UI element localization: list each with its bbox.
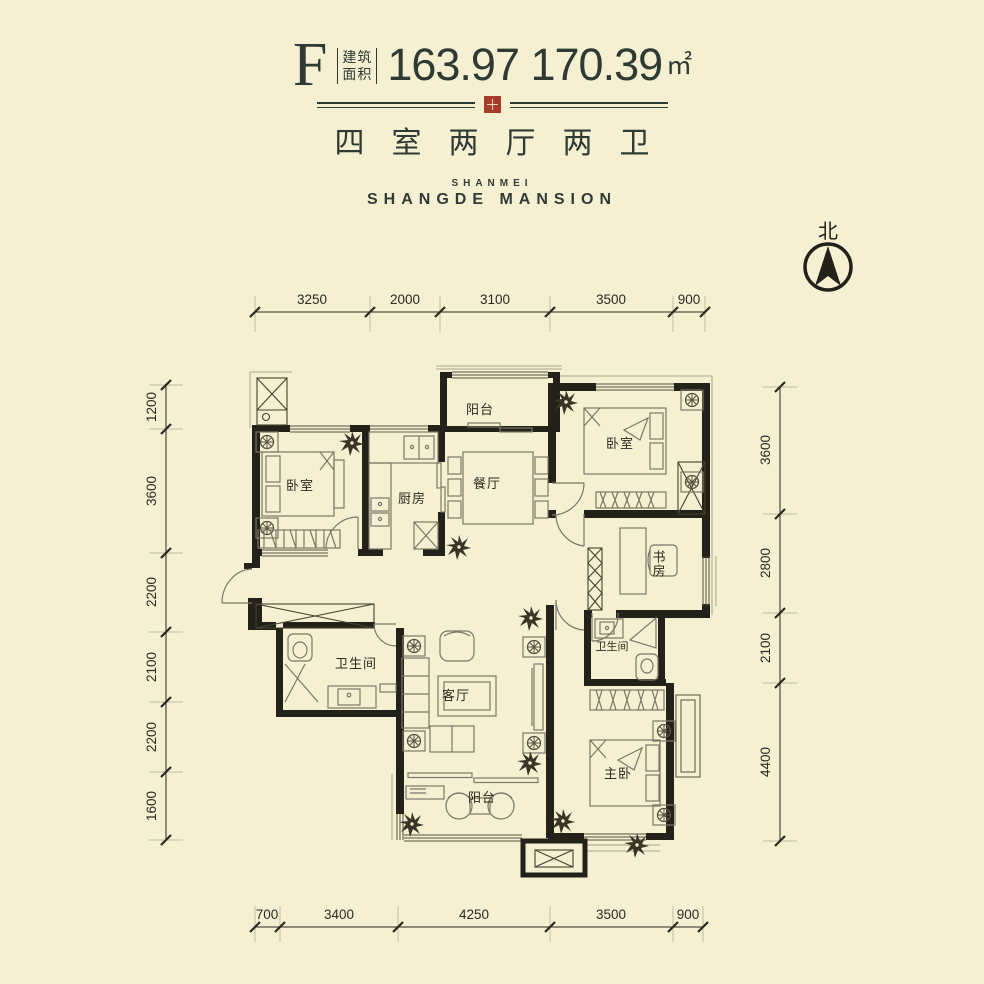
room-label-dining: 餐厅 (473, 476, 501, 491)
dim-top-1: 3250 (297, 292, 327, 307)
dim-left-4: 2100 (144, 652, 159, 682)
north-label: 北 (818, 220, 838, 243)
dimension-extension-lines (149, 296, 797, 942)
dim-left-2: 3600 (144, 476, 159, 506)
room-label-bedroom-topleft: 卧室 (286, 478, 314, 493)
north-arrow-icon (815, 246, 841, 286)
walls (244, 372, 710, 840)
balcony-chairs (406, 786, 514, 819)
dim-bottom-2: 3400 (324, 907, 354, 922)
closet-topright (596, 492, 666, 508)
room-label-master-bedroom: 主卧 (604, 766, 632, 781)
dim-top-4: 3500 (596, 292, 626, 307)
dim-right-2: 2800 (758, 548, 773, 578)
living-sofa-set (402, 631, 543, 752)
room-label-living: 客厅 (442, 688, 470, 703)
compass: 北 (805, 220, 851, 290)
dim-right-3: 2100 (758, 633, 773, 663)
room-label-balcony-top: 阳台 (466, 402, 494, 417)
room-label-bathroom-left: 卫生间 (335, 656, 377, 671)
dim-bottom-4: 3500 (596, 907, 626, 922)
room-label-study: 书房 (651, 550, 666, 578)
study-desk (620, 528, 677, 594)
entry-door (222, 569, 252, 603)
room-label-kitchen: 厨房 (398, 491, 426, 506)
floor-plan: 北 3250 2000 3100 3500 900 700 3400 4250 … (0, 0, 984, 984)
dimension-bottom: 700 3400 4250 3500 900 (250, 907, 708, 932)
dim-left-1: 1200 (144, 392, 159, 422)
dim-left-5: 2200 (144, 722, 159, 752)
bathroom-left-fixtures (285, 634, 396, 708)
dim-right-1: 3600 (758, 435, 773, 465)
dim-top-3: 3100 (480, 292, 510, 307)
furniture (256, 390, 703, 825)
dim-top-5: 900 (678, 292, 701, 307)
dimension-right: 3600 2800 2100 4400 (758, 382, 785, 846)
dim-left-3: 2200 (144, 577, 159, 607)
room-label-bedroom-topright: 卧室 (606, 436, 634, 451)
dim-right-4: 4400 (758, 747, 773, 777)
dimension-top: 3250 2000 3100 3500 900 (250, 292, 710, 317)
dimension-left: 1200 3600 2200 2100 2200 1600 (144, 380, 171, 845)
dim-top-2: 2000 (390, 292, 420, 307)
dim-bottom-5: 900 (677, 907, 700, 922)
dim-bottom-3: 4250 (459, 907, 489, 922)
master-closet (590, 690, 664, 710)
windows (262, 372, 709, 841)
dim-left-6: 1600 (144, 791, 159, 821)
room-label-balcony-bottom: 阳台 (468, 790, 496, 805)
dim-bottom-1: 700 (256, 907, 279, 922)
room-label-bathroom-right: 卫生间 (596, 639, 629, 653)
